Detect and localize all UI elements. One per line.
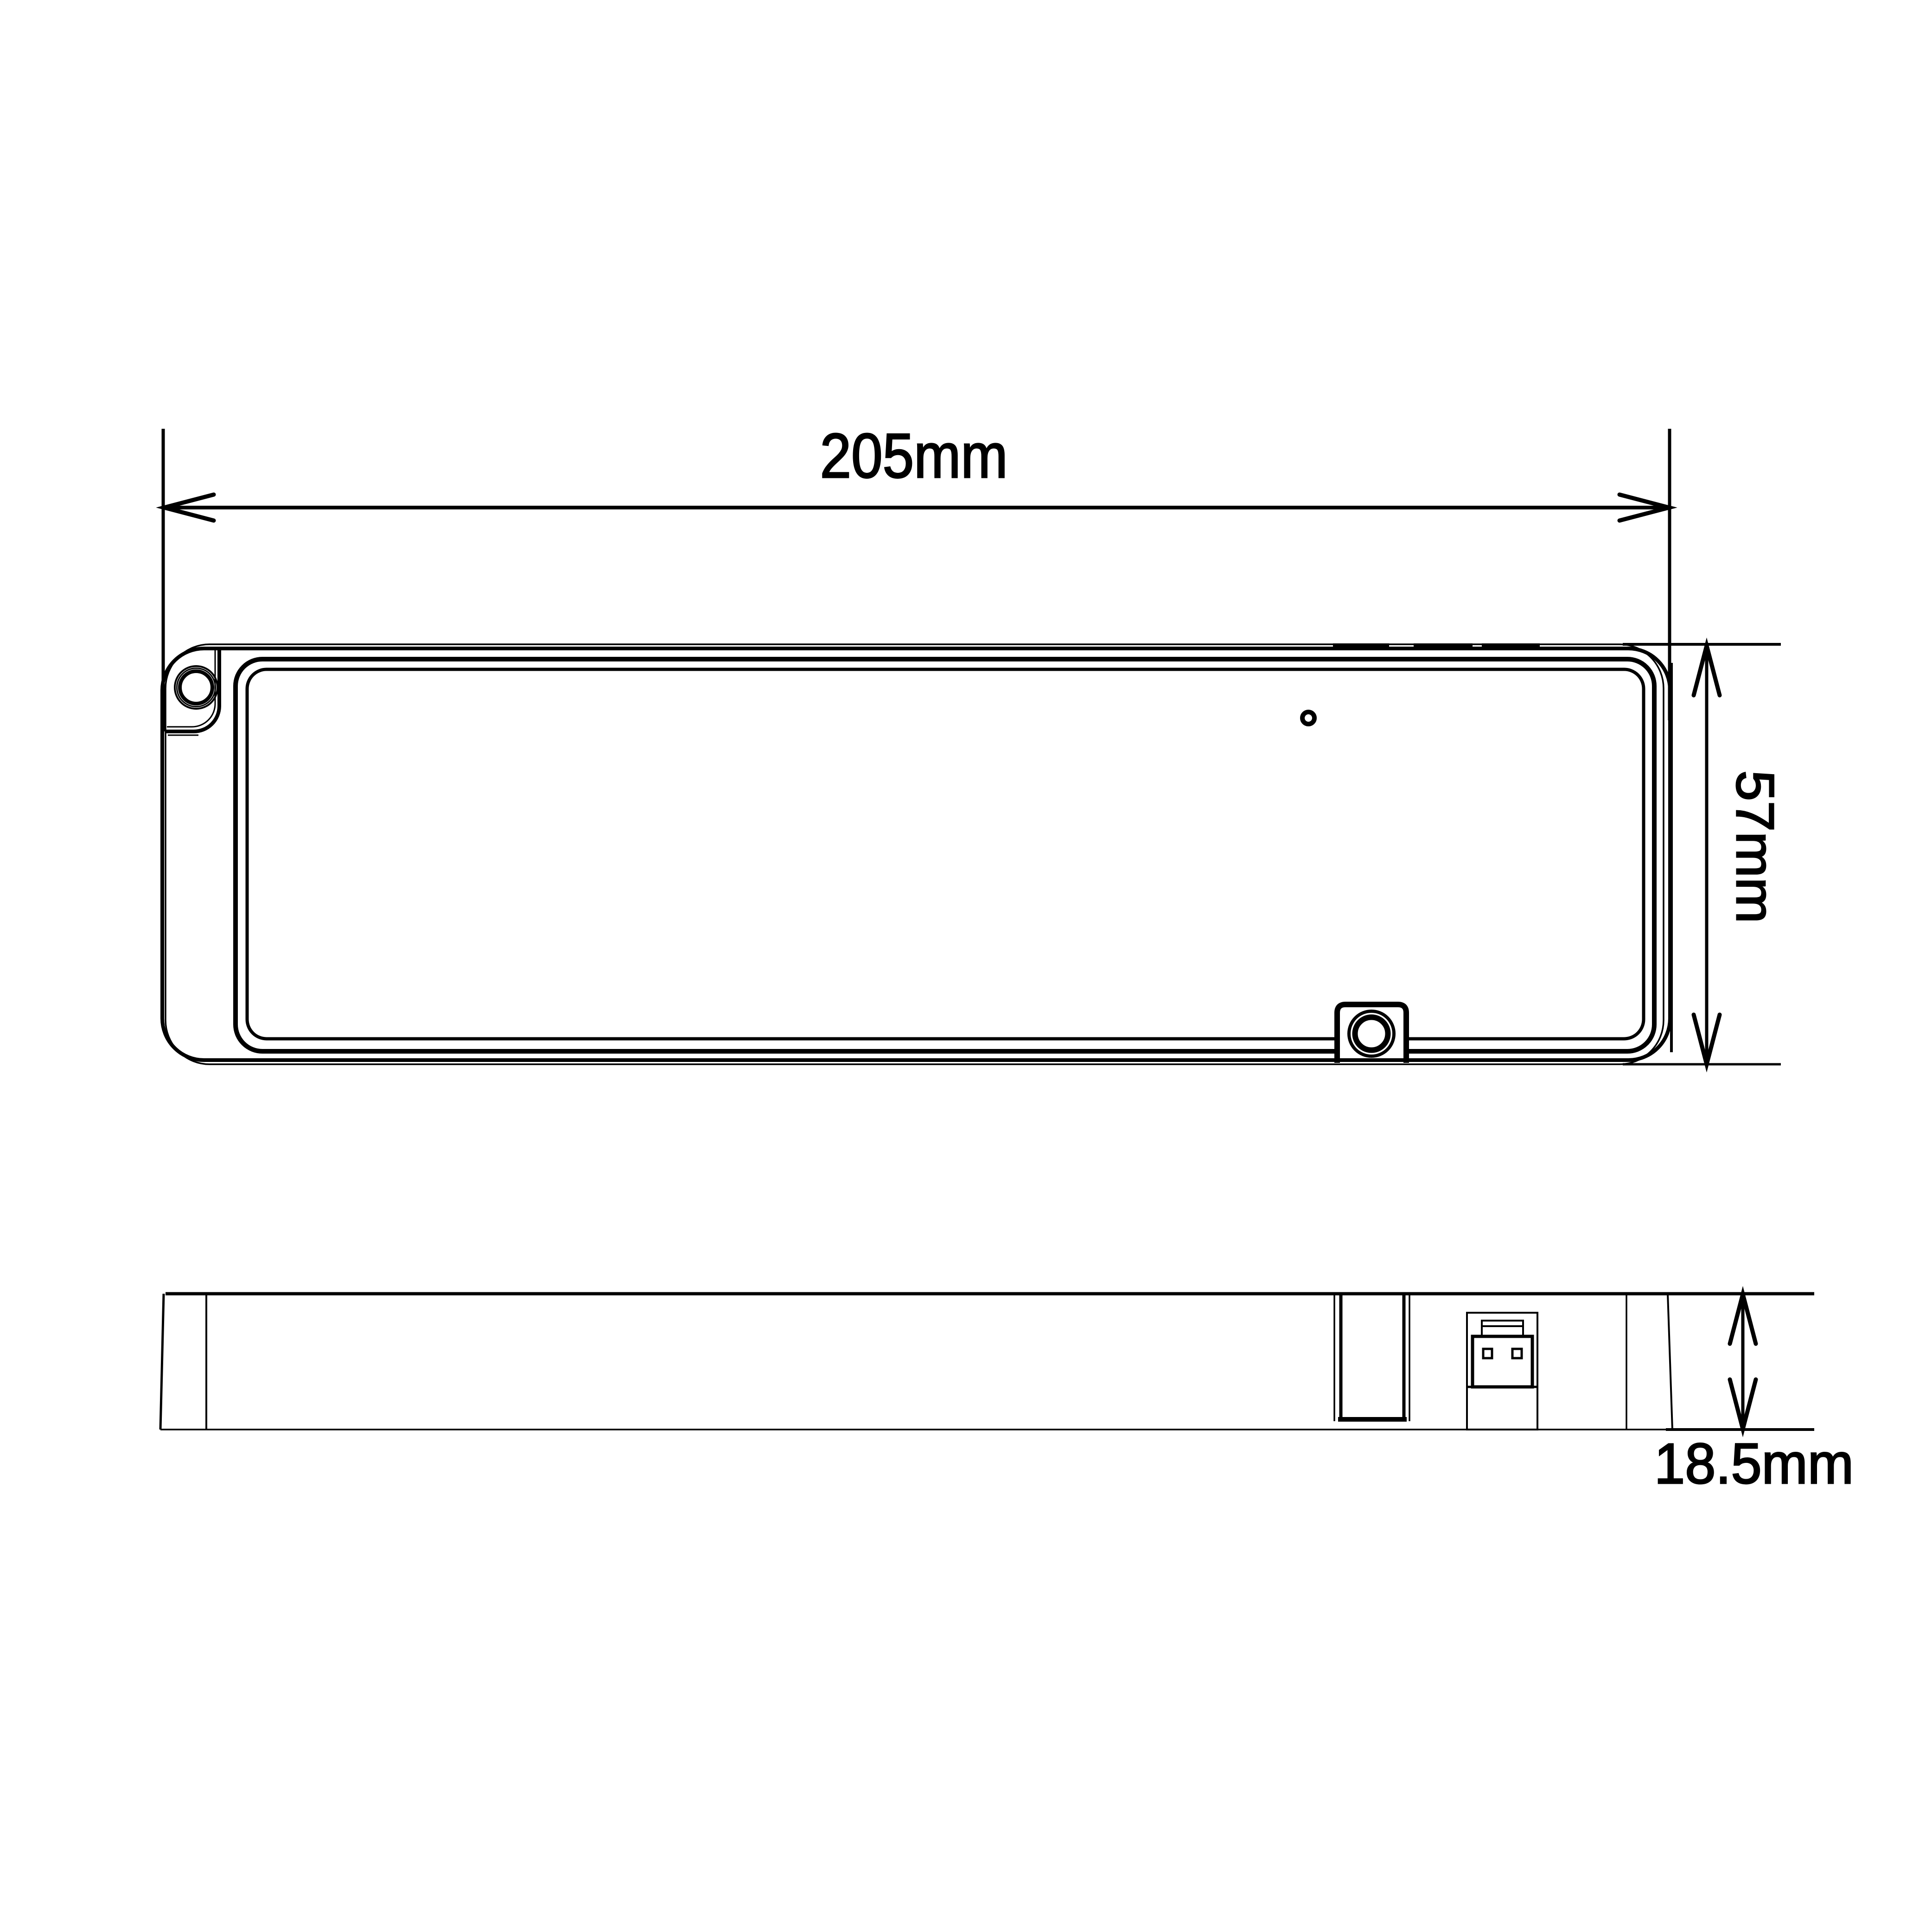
svg-text:57mm: 57mm: [1725, 770, 1785, 923]
svg-text:18.5mm: 18.5mm: [1654, 1432, 1854, 1496]
svg-text:205mm: 205mm: [820, 420, 1008, 491]
